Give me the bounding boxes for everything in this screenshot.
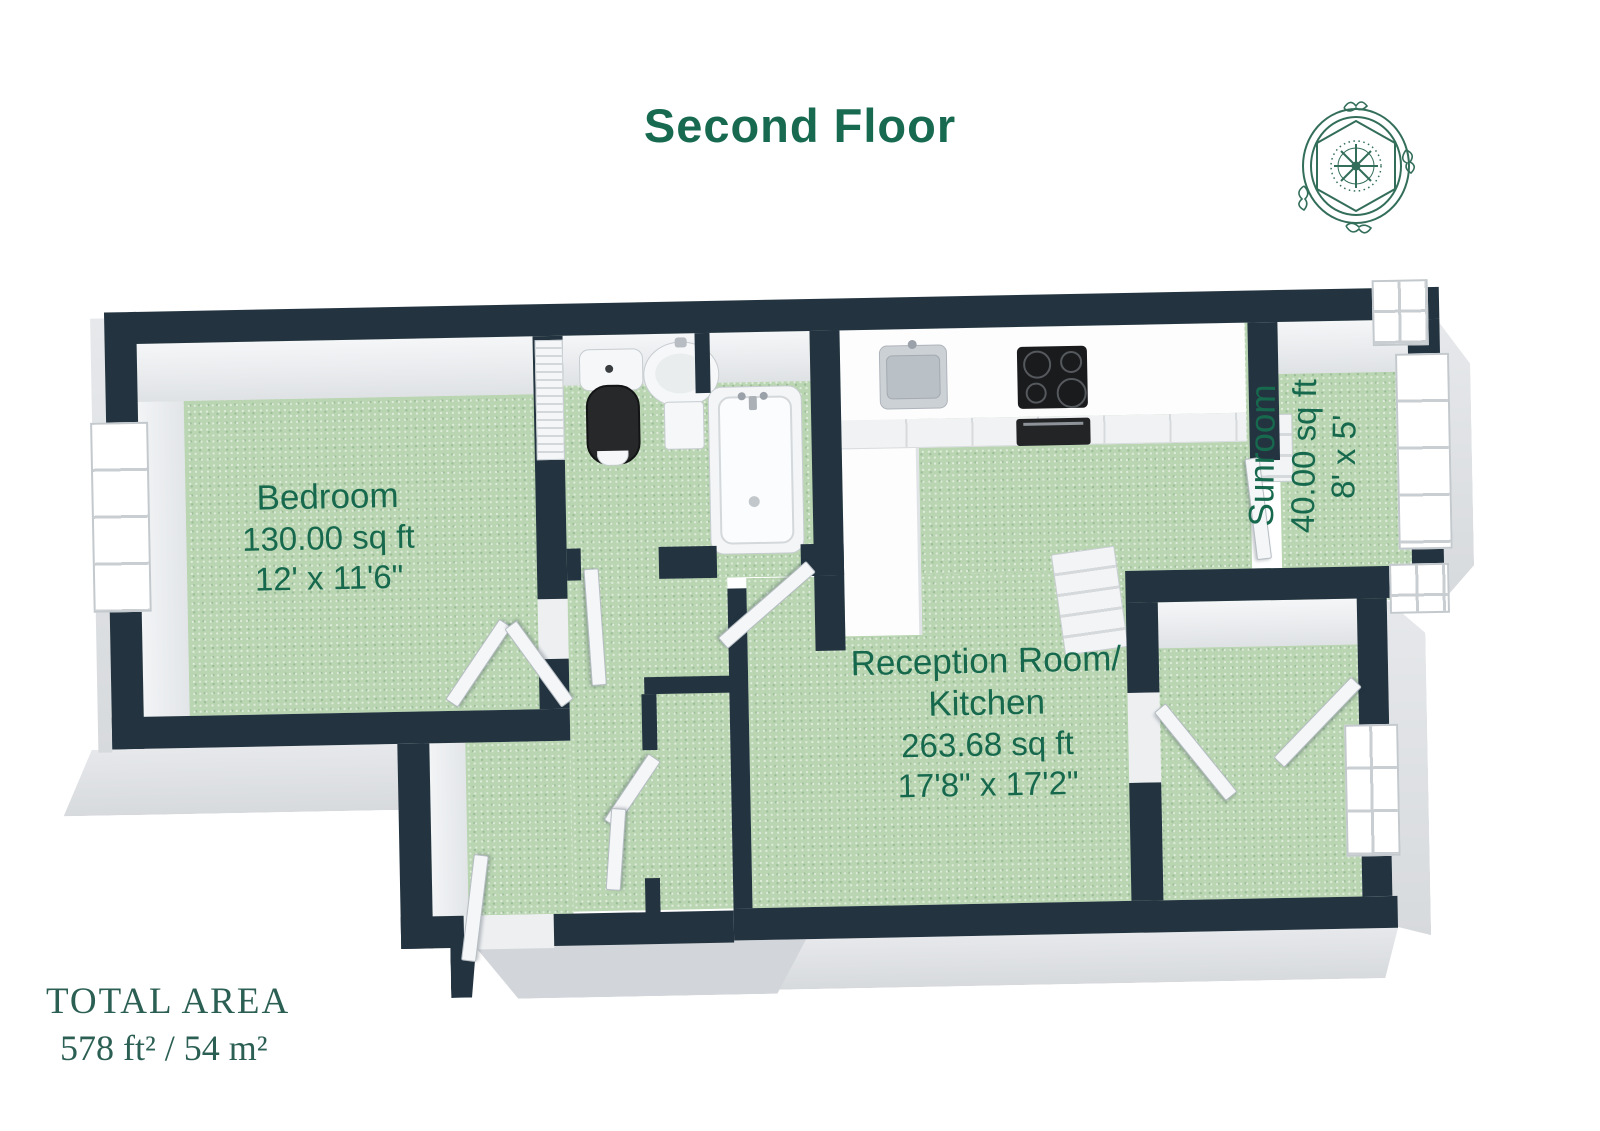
tub-spout (749, 396, 757, 410)
total-area: TOTAL AREA 578 ft² / 54 m² (46, 980, 290, 1069)
wall (645, 878, 661, 942)
oven (1016, 418, 1091, 446)
wall (567, 548, 582, 580)
burner (1023, 350, 1052, 379)
room-area: 130.00 sq ft (158, 515, 499, 561)
bedroom-window (90, 422, 152, 613)
wall-inner-face (1158, 599, 1358, 649)
wall (1357, 598, 1389, 729)
wall (814, 575, 845, 651)
door-jamb (538, 597, 569, 662)
room-area: 40.00 sq ft (1282, 326, 1326, 587)
sunroom-right-window (1395, 353, 1453, 550)
faucet-icon (675, 337, 687, 347)
toilet (0, 0, 1588, 15)
sunroom-label: Sunroom 40.00 sq ft 8' x 5' (1240, 325, 1394, 587)
total-area-value: 578 ft² / 54 m² (60, 1027, 290, 1069)
floorplan: Bedroom 130.00 sq ft 12' x 11'6" Recepti… (0, 0, 1600, 1131)
reception-window (1344, 724, 1401, 857)
room-name: Bedroom (157, 473, 498, 522)
bathtub (0, 0, 1588, 15)
wall (554, 911, 735, 946)
wall (659, 546, 718, 579)
bedroom-label: Bedroom 130.00 sq ft 12' x 11'6" (157, 473, 499, 601)
wall-inner-face (137, 336, 534, 402)
wall (694, 333, 710, 393)
sink-bowl (886, 354, 941, 399)
reception-label: Reception Room/ Kitchen 263.68 sq ft 17'… (785, 637, 1188, 808)
room-dimensions: 8' x 5' (1322, 326, 1366, 587)
total-area-label: TOTAL AREA (46, 980, 290, 1023)
room-dimensions: 17'8" x 17'2" (788, 760, 1189, 807)
pedestal-sink (0, 0, 1588, 15)
tub-basin (718, 395, 795, 544)
burner (1025, 382, 1046, 403)
wall-inner-face (429, 743, 468, 917)
sunroom-bottom-window (1389, 563, 1450, 614)
wall (1362, 854, 1393, 897)
faucet-icon (908, 340, 917, 349)
wall (809, 330, 844, 576)
kitchen-sink (879, 344, 948, 409)
room-name: Sunroom (1240, 325, 1286, 586)
burner (1060, 351, 1082, 373)
oven-handle (1023, 422, 1083, 426)
cooktop (1017, 346, 1088, 409)
wall-side-face (62, 743, 431, 816)
wall (397, 743, 433, 949)
burner (1056, 378, 1087, 409)
floorplan-page: Second Floor (0, 0, 1600, 1131)
wall (641, 694, 657, 750)
room-dimensions: 12' x 11'6" (159, 555, 500, 601)
wardrobe-louver (535, 340, 565, 461)
